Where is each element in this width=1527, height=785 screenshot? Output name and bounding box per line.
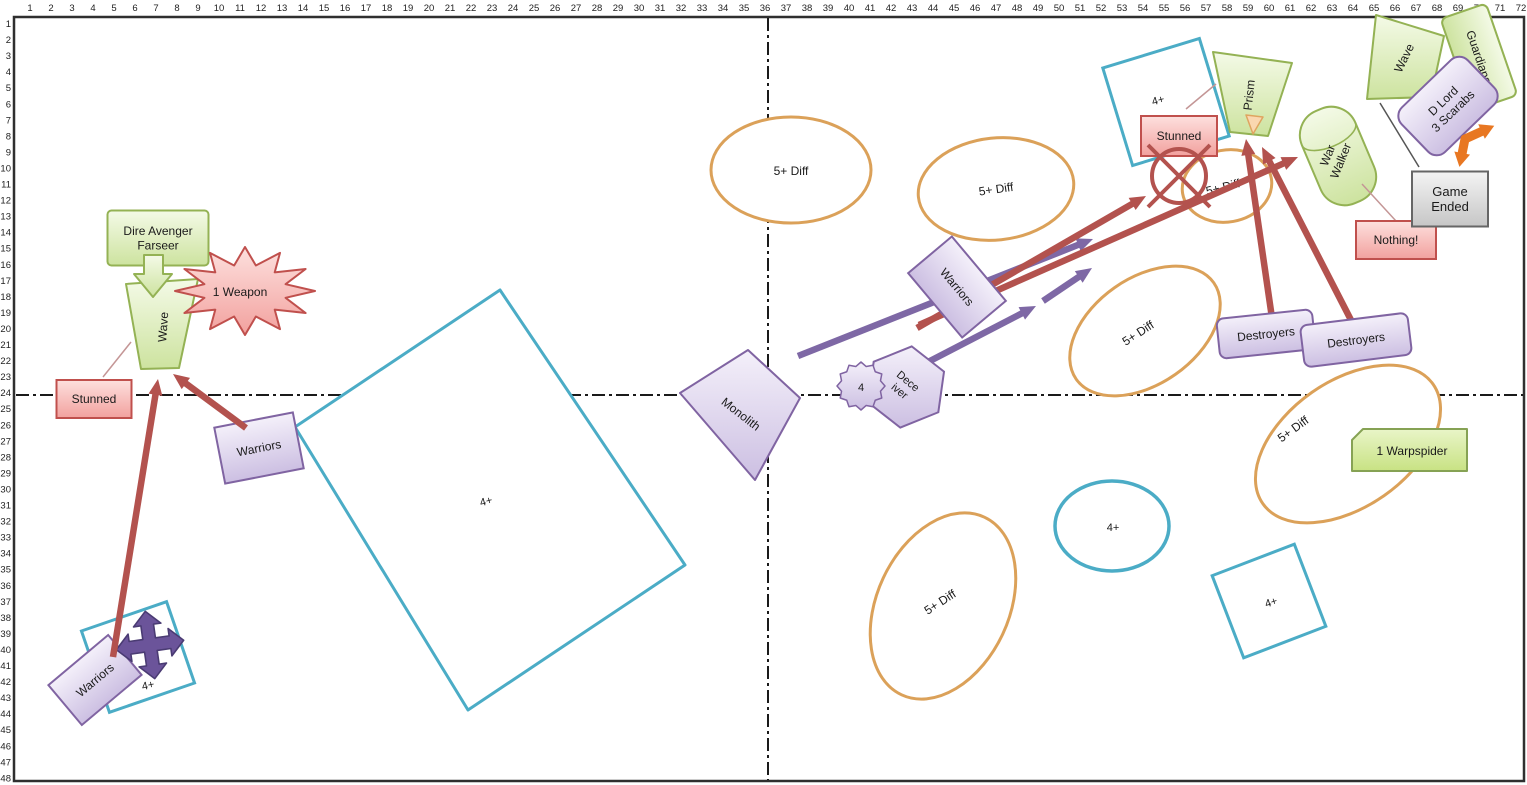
- row-number: 14: [0, 228, 11, 239]
- col-number: 7: [153, 3, 158, 14]
- game-ended-box-label: GameEnded: [1431, 184, 1469, 214]
- col-number: 60: [1264, 3, 1275, 14]
- stunned-callout-left-label: Stunned: [72, 392, 117, 406]
- battle-map-canvas: 1234567891011121314151617181920212223242…: [0, 0, 1527, 785]
- row-number: 24: [0, 388, 11, 399]
- row-number: 35: [0, 565, 11, 576]
- col-number: 49: [1033, 3, 1044, 14]
- row-number: 17: [0, 276, 11, 287]
- col-number: 41: [865, 3, 876, 14]
- terrain-4plus-square-bottom-left-label: 4+: [141, 679, 156, 693]
- col-number: 56: [1180, 3, 1191, 14]
- row-number: 28: [0, 452, 11, 463]
- col-number: 23: [487, 3, 498, 14]
- row-number: 25: [0, 404, 11, 415]
- col-number: 38: [802, 3, 813, 14]
- col-number: 15: [319, 3, 330, 14]
- col-number: 2: [48, 3, 53, 14]
- row-number: 40: [0, 645, 11, 656]
- battle-map-svg: 1234567891011121314151617181920212223242…: [0, 0, 1527, 785]
- col-number: 14: [298, 3, 309, 14]
- row-number: 13: [0, 212, 11, 223]
- col-number: 48: [1012, 3, 1023, 14]
- col-number: 3: [69, 3, 74, 14]
- col-number: 42: [886, 3, 897, 14]
- deceiver-counter-4-label: 4: [858, 382, 864, 394]
- col-number: 20: [424, 3, 435, 14]
- col-number: 6: [132, 3, 137, 14]
- col-number: 44: [928, 3, 939, 14]
- col-number: 13: [277, 3, 288, 14]
- row-number: 29: [0, 468, 11, 479]
- row-number: 10: [0, 163, 11, 174]
- shooting-arrow-warriors-mid-to-wave[interactable]: [173, 374, 246, 428]
- row-number: 3: [6, 51, 11, 62]
- row-number: 31: [0, 501, 11, 512]
- col-number: 37: [781, 3, 792, 14]
- col-number: 27: [571, 3, 582, 14]
- col-number: 26: [550, 3, 561, 14]
- terrain-4plus-circle-label: 4+: [1107, 522, 1120, 534]
- row-number: 46: [0, 741, 11, 752]
- col-number: 64: [1348, 3, 1359, 14]
- col-number: 1: [27, 3, 32, 14]
- col-number: 11: [235, 3, 245, 14]
- row-number: 39: [0, 629, 11, 640]
- row-number: 34: [0, 549, 11, 560]
- col-number: 46: [970, 3, 981, 14]
- row-number: 22: [0, 356, 11, 367]
- col-number: 54: [1138, 3, 1149, 14]
- nothing-callout-label: Nothing!: [1374, 233, 1419, 247]
- row-number: 42: [0, 677, 11, 688]
- row-number: 7: [6, 115, 11, 126]
- callout-connector-nothing[interactable]: [1362, 184, 1396, 221]
- col-number: 24: [508, 3, 519, 14]
- col-number: 72: [1516, 3, 1527, 14]
- row-number: 9: [6, 147, 11, 158]
- row-number: 6: [6, 99, 11, 110]
- col-number: 51: [1075, 3, 1086, 14]
- col-number: 21: [445, 3, 456, 14]
- col-number: 17: [361, 3, 372, 14]
- row-number: 38: [0, 613, 11, 624]
- col-number: 22: [466, 3, 477, 14]
- row-number: 16: [0, 260, 11, 271]
- row-number: 12: [0, 196, 11, 207]
- col-number: 5: [111, 3, 116, 14]
- row-number: 20: [0, 324, 11, 335]
- col-number: 45: [949, 3, 960, 14]
- row-number: 26: [0, 420, 11, 431]
- col-number: 35: [739, 3, 750, 14]
- col-number: 39: [823, 3, 834, 14]
- row-number: 2: [6, 35, 11, 46]
- row-number: 11: [1, 180, 11, 191]
- col-number: 10: [214, 3, 225, 14]
- wave-serpent-left-label: Wave: [155, 311, 171, 342]
- row-ruler: 1234567891011121314151617181920212223242…: [0, 19, 11, 784]
- column-ruler: 1234567891011121314151617181920212223242…: [27, 3, 1526, 14]
- row-number: 44: [0, 709, 11, 720]
- col-number: 47: [991, 3, 1002, 14]
- col-number: 40: [844, 3, 855, 14]
- col-number: 71: [1495, 3, 1506, 14]
- col-number: 57: [1201, 3, 1212, 14]
- callout-connector-stunned-left[interactable]: [103, 342, 131, 377]
- row-number: 33: [0, 533, 11, 544]
- col-number: 28: [592, 3, 603, 14]
- col-number: 62: [1306, 3, 1317, 14]
- col-number: 36: [760, 3, 771, 14]
- col-number: 4: [90, 3, 95, 14]
- row-number: 19: [0, 308, 11, 319]
- col-number: 31: [655, 3, 666, 14]
- col-number: 43: [907, 3, 918, 14]
- row-number: 43: [0, 693, 11, 704]
- col-number: 34: [718, 3, 729, 14]
- row-number: 32: [0, 517, 11, 528]
- col-number: 32: [676, 3, 687, 14]
- col-number: 50: [1054, 3, 1065, 14]
- row-number: 48: [0, 773, 11, 784]
- row-number: 27: [0, 436, 11, 447]
- row-number: 18: [0, 292, 11, 303]
- shapes-root: 5+ Diff5+ Diff4+5+ Diff4+4+5+ Diff5+ Dif…: [16, 3, 1523, 780]
- col-number: 53: [1117, 3, 1128, 14]
- one-weapon-destroyed-star-label: 1 Weapon: [213, 285, 268, 299]
- terrain-5plus-diff-ellipse-1-label: 5+ Diff: [774, 164, 809, 178]
- col-number: 9: [195, 3, 200, 14]
- col-number: 67: [1411, 3, 1422, 14]
- col-number: 18: [382, 3, 393, 14]
- stunned-callout-right-label: Stunned: [1157, 129, 1202, 143]
- warpspider-callout-label: 1 Warpspider: [1377, 444, 1448, 458]
- row-number: 47: [0, 757, 11, 768]
- col-number: 68: [1432, 3, 1443, 14]
- col-number: 58: [1222, 3, 1233, 14]
- row-number: 41: [0, 661, 11, 672]
- col-number: 30: [634, 3, 645, 14]
- col-number: 33: [697, 3, 708, 14]
- row-number: 45: [0, 725, 11, 736]
- row-number: 30: [0, 484, 11, 495]
- row-number: 1: [6, 19, 11, 30]
- col-number: 65: [1369, 3, 1380, 14]
- row-number: 4: [6, 67, 11, 78]
- row-number: 21: [0, 340, 11, 351]
- col-number: 19: [403, 3, 414, 14]
- row-number: 23: [0, 372, 11, 383]
- row-number: 36: [0, 581, 11, 592]
- col-number: 52: [1096, 3, 1107, 14]
- row-number: 5: [6, 83, 11, 94]
- col-number: 63: [1327, 3, 1338, 14]
- col-number: 61: [1285, 3, 1296, 14]
- col-number: 29: [613, 3, 624, 14]
- movement-arrow-deceiver-2[interactable]: [1043, 268, 1092, 301]
- col-number: 25: [529, 3, 540, 14]
- col-number: 59: [1243, 3, 1254, 14]
- col-number: 8: [174, 3, 179, 14]
- col-number: 16: [340, 3, 351, 14]
- row-number: 37: [0, 597, 11, 608]
- col-number: 55: [1159, 3, 1170, 14]
- row-number: 15: [0, 244, 11, 255]
- col-number: 12: [256, 3, 267, 14]
- col-number: 66: [1390, 3, 1401, 14]
- row-number: 8: [6, 131, 11, 142]
